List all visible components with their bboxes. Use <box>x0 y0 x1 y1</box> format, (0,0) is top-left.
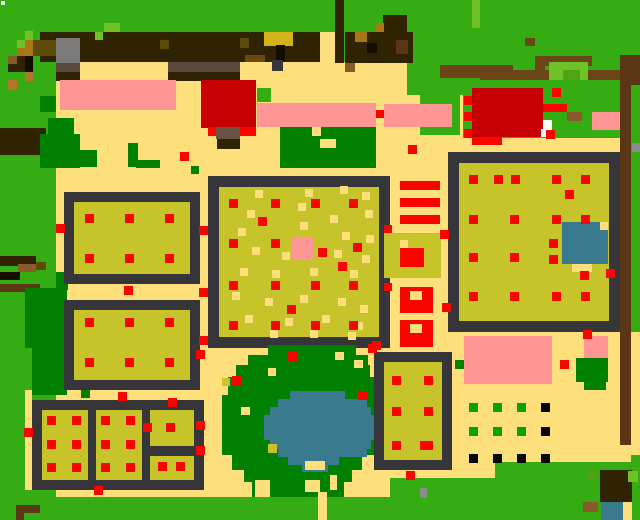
crop-marker-red <box>143 423 152 432</box>
crop-marker-green <box>469 403 478 412</box>
crop-marker-green <box>493 427 502 436</box>
crop-marker-red <box>126 416 135 425</box>
crop-marker-green <box>493 403 502 412</box>
crop-marker-red <box>199 288 208 297</box>
crop-marker-black <box>493 454 502 463</box>
crop-marker-red <box>494 175 503 184</box>
crop-marker-red <box>101 440 110 449</box>
crop-marker-red <box>510 253 519 262</box>
crop-marker-red <box>358 391 367 400</box>
crop-marker-red <box>126 440 135 449</box>
crop-marker-red <box>349 281 358 290</box>
crop-marker-red <box>469 175 478 184</box>
crop-marker-red <box>24 428 33 437</box>
crop-marker-red <box>311 321 320 330</box>
crop-marker-red <box>176 462 185 471</box>
crop-marker-red <box>180 152 189 161</box>
crop-marker-red <box>166 423 175 432</box>
crop-marker-red <box>258 217 267 226</box>
crop-marker-red <box>229 321 238 330</box>
crop-marker-red <box>580 271 589 280</box>
crop-marker-red <box>549 239 558 248</box>
crop-marker-red <box>424 376 433 385</box>
crop-marker-red <box>469 215 478 224</box>
crop-marker-red <box>469 292 478 301</box>
crop-marker-red <box>165 254 174 263</box>
crop-marker-red <box>72 416 81 425</box>
crop-marker-red <box>583 330 592 339</box>
crop-marker-green <box>469 427 478 436</box>
crop-marker-red <box>318 248 327 257</box>
crop-marker-red <box>199 336 208 345</box>
crop-marker-red <box>552 175 561 184</box>
crop-marker-red <box>165 214 174 223</box>
crop-marker-black <box>517 454 526 463</box>
crop-marker-red <box>101 463 110 472</box>
crop-marker-red <box>440 230 449 239</box>
crop-marker-red <box>165 358 174 367</box>
crop-marker-red <box>581 215 590 224</box>
crop-marker-red <box>565 190 574 199</box>
crop-marker-red <box>392 376 401 385</box>
crop-marker-red <box>510 292 519 301</box>
crop-marker-green <box>517 427 526 436</box>
crop-marker-red <box>581 292 590 301</box>
crop-marker-red <box>229 239 238 248</box>
crop-marker-green <box>517 403 526 412</box>
crop-marker-red <box>72 440 81 449</box>
crop-marker-red <box>424 407 433 416</box>
crop-marker-red <box>125 318 134 327</box>
crop-marker-red <box>85 318 94 327</box>
farm-map-canvas[interactable] <box>0 0 640 520</box>
crop-marker-red <box>338 262 347 271</box>
crop-marker-red <box>47 463 56 472</box>
crop-marker-red <box>158 462 167 471</box>
crop-marker-red <box>271 281 280 290</box>
crop-marker-red <box>125 254 134 263</box>
crop-marker-red <box>199 226 208 235</box>
crop-marker-red <box>47 416 56 425</box>
crop-marker-red <box>581 175 590 184</box>
crop-marker-red <box>118 392 127 401</box>
crop-marker-red <box>606 269 615 278</box>
crop-marker-red <box>349 199 358 208</box>
crop-marker-red <box>125 214 134 223</box>
crop-marker-red <box>311 199 320 208</box>
crop-marker-red <box>406 471 415 480</box>
crop-marker-red <box>510 215 519 224</box>
crop-marker-red <box>85 358 94 367</box>
crop-marker-red <box>124 286 133 295</box>
crop-marker-red <box>408 145 417 154</box>
crop-marker-black <box>469 454 478 463</box>
crop-marker-red <box>271 239 280 248</box>
crop-marker-red <box>511 175 520 184</box>
crop-marker-black <box>541 427 550 436</box>
crop-marker-red <box>94 486 103 495</box>
crop-marker-red <box>560 360 569 369</box>
crop-marker-red <box>549 255 558 264</box>
crop-marker-red <box>392 407 401 416</box>
crop-marker-red <box>232 376 241 385</box>
crop-marker-red <box>271 321 280 330</box>
layer-markers <box>0 0 640 520</box>
crop-marker-red <box>196 446 205 455</box>
crop-marker-red <box>125 358 134 367</box>
crop-marker-red <box>552 215 561 224</box>
crop-marker-black <box>541 403 550 412</box>
crop-marker-red <box>287 305 296 314</box>
crop-marker-red <box>165 318 174 327</box>
crop-marker-red <box>353 243 362 252</box>
crop-marker-red <box>168 398 177 407</box>
crop-marker-red <box>126 463 135 472</box>
crop-marker-red <box>47 440 56 449</box>
crop-marker-red <box>392 441 401 450</box>
crop-marker-red <box>546 130 555 139</box>
crop-marker-red <box>469 253 478 262</box>
crop-marker-red <box>349 321 358 330</box>
crop-marker-red <box>420 441 429 450</box>
crop-marker-red <box>85 254 94 263</box>
crop-marker-red <box>552 292 561 301</box>
crop-marker-red <box>101 416 110 425</box>
crop-marker-red <box>442 303 451 312</box>
crop-marker-red <box>288 352 297 361</box>
crop-marker-red <box>368 344 377 353</box>
crop-marker-red <box>56 224 65 233</box>
crop-marker-red <box>196 350 205 359</box>
crop-marker-red <box>85 214 94 223</box>
crop-marker-black <box>541 454 550 463</box>
crop-marker-red <box>229 199 238 208</box>
crop-marker-red <box>72 463 81 472</box>
crop-marker-red <box>229 281 238 290</box>
crop-marker-red <box>311 281 320 290</box>
crop-marker-red <box>271 199 280 208</box>
crop-marker-red <box>196 421 205 430</box>
crop-marker-red <box>552 88 561 97</box>
